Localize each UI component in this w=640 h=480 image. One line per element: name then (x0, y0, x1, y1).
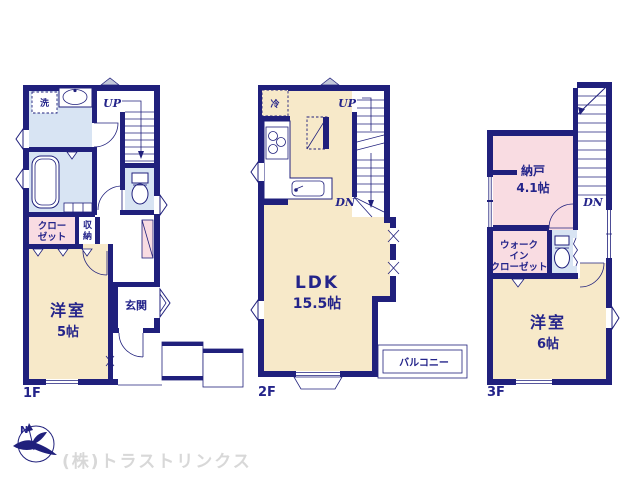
stairs-3f (578, 87, 606, 195)
floor-label-1f: 1F (23, 386, 41, 401)
laundry-space: 洗 (32, 92, 57, 113)
roof-vent-icon (321, 78, 339, 85)
stairs-up-label-2f: UP (338, 97, 357, 110)
entrance-label: 玄関 (125, 298, 147, 312)
floor-plan-3f: DN 納戸 4.1帖 ウォーク イン クローゼット 洋室 6帖 3F (487, 82, 619, 400)
floorplan-drawing: UP 洗 (0, 0, 640, 480)
balcony-2f: バルコニー (378, 345, 467, 378)
storage-label-char2: 納 (83, 230, 92, 242)
company-watermark: (株)トラストリンクス (62, 451, 252, 472)
window-chevron-icon (612, 307, 619, 329)
bedroom-3f-size: 6帖 (537, 336, 559, 352)
floor-label-2f: 2F (258, 385, 276, 400)
compass-north-label: N (20, 425, 28, 436)
toilet-icon-1f (132, 173, 148, 204)
wic-label-line2: イン (509, 251, 528, 262)
bedroom-1f-size: 5帖 (57, 324, 79, 340)
storage-label-char1: 収 (83, 219, 93, 231)
storeroom-size: 4.1帖 (516, 180, 549, 195)
stove-icon (266, 127, 288, 159)
front-door-chevron (160, 289, 170, 317)
cupboard-icon (307, 117, 329, 149)
toilet-icon-3f (555, 236, 570, 268)
ldk-label: LDK (295, 273, 339, 293)
wic-label-line1: ウォーク (500, 240, 538, 251)
door-arc-entrance (119, 333, 143, 357)
floor-plan-1f: UP 洗 (16, 78, 243, 401)
wic-label-line3: クローゼット (490, 261, 547, 273)
closet-label-line2: ゼット (38, 231, 67, 243)
kitchen-sink-icon (292, 181, 324, 196)
bedroom-1f-label: 洋室 (50, 301, 86, 320)
window-chevron-icon (16, 129, 23, 149)
floor-label-3f: 3F (487, 385, 505, 400)
laundry-label: 洗 (40, 97, 49, 109)
bedroom-3f-label: 洋室 (530, 313, 566, 332)
window-chevron-icon (160, 195, 167, 215)
stairs-2f (354, 98, 384, 217)
storeroom-label: 納戸 (521, 163, 545, 178)
floor-plan-2f: UP DN 冷 (251, 78, 467, 400)
stairs-1f (122, 101, 154, 161)
balcony-label: バルコニー (399, 357, 449, 369)
window-chevron-icon (251, 300, 258, 320)
stairs-up-label-1f: UP (103, 97, 122, 110)
door-arc-washroom (94, 123, 118, 147)
fridge-label: 冷 (270, 98, 279, 110)
door-arc-toilet-1f (98, 186, 122, 210)
roof-vent-icon (101, 78, 119, 85)
ldk-size: 15.5帖 (293, 295, 342, 312)
fridge-space: 冷 (262, 90, 288, 116)
porch-steps-1f (106, 342, 243, 387)
closet-label-line1: クロー (38, 221, 67, 232)
window-chevron-icon (16, 169, 23, 189)
window-chevron-icon (251, 162, 258, 182)
washbasin-icon (59, 88, 92, 107)
stairs-down-label-2f: DN (334, 196, 356, 209)
floorplan-page: UP 洗 (0, 0, 640, 480)
bay-window-2f (294, 371, 342, 389)
stairs-down-label-3f: DN (582, 196, 604, 209)
compass: N (13, 423, 57, 462)
